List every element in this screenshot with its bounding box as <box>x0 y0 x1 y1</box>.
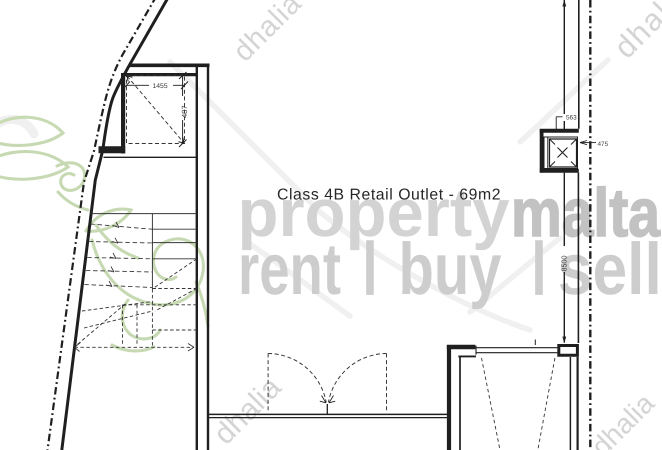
svg-text:l: l <box>533 229 546 310</box>
svg-text:563: 563 <box>566 115 577 122</box>
svg-text:l: l <box>364 229 377 310</box>
svg-text:dhalia: dhalia <box>227 0 308 68</box>
svg-text:Class 4B Retail Outlet - 69m2: Class 4B Retail Outlet - 69m2 <box>277 187 501 204</box>
svg-text:rent: rent <box>238 229 341 310</box>
svg-text:dhalia: dhalia <box>585 387 660 450</box>
svg-text:487: 487 <box>180 105 189 118</box>
svg-text:dhalia: dhalia <box>607 0 662 65</box>
svg-text:dhalia: dhalia <box>208 371 288 450</box>
svg-text:8500: 8500 <box>560 256 569 272</box>
svg-text:1455: 1455 <box>153 83 168 90</box>
svg-text:sell: sell <box>558 229 662 310</box>
svg-text:475: 475 <box>598 141 609 148</box>
svg-text:buy: buy <box>399 229 502 310</box>
